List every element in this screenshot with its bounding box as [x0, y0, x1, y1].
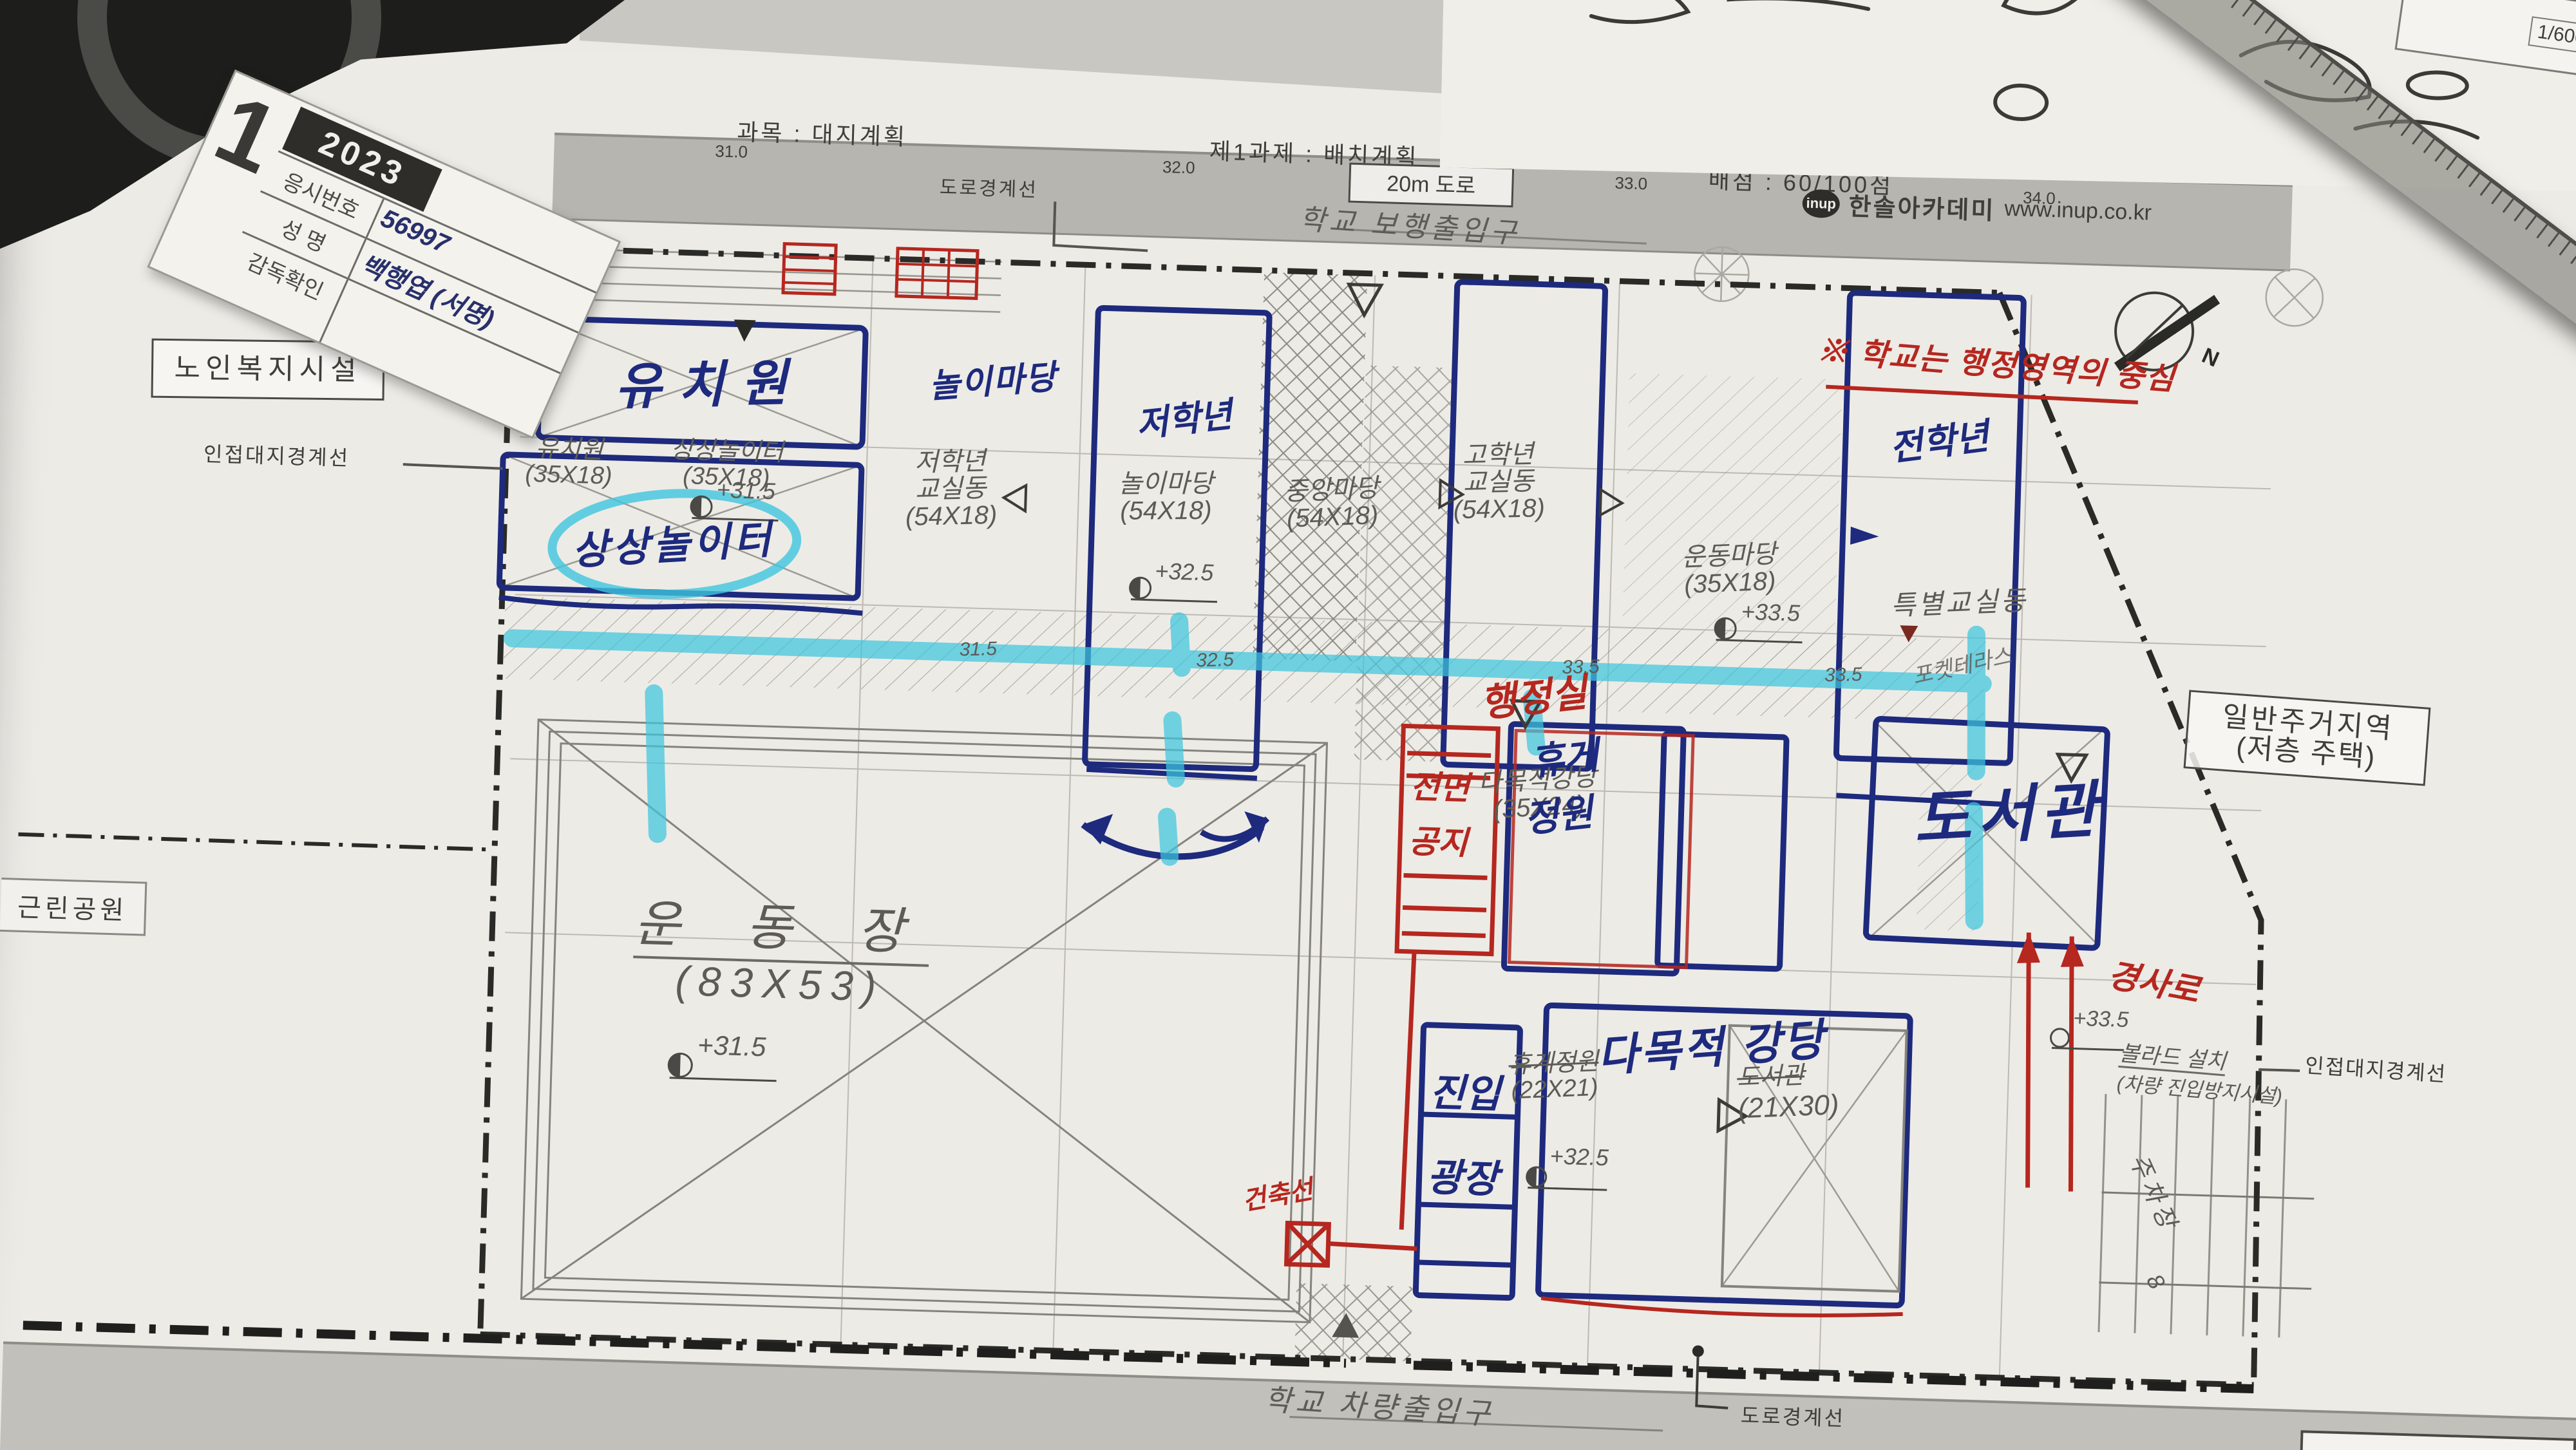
level-sports-yard: +33.5: [1741, 598, 1800, 627]
road-tick-34: 34.0: [2023, 188, 2056, 209]
header-subject: 과목 : 대지계획: [737, 113, 908, 152]
brand-logo-icon: inup: [1802, 189, 1840, 218]
park-label: 근린공원: [0, 878, 147, 936]
level-rest-old: +32.5: [1549, 1142, 1609, 1171]
central-yard-hatch: [1354, 365, 1455, 762]
brand-name: 한솔아카데미: [1848, 187, 1996, 227]
vehicle-entry-hatch: [1294, 1283, 1412, 1361]
rest-old-pencil: 휴게정원(22X21): [1508, 1050, 1600, 1104]
imagination-blue: 상상놀이터: [570, 507, 776, 576]
road-boundary-bottom-label: 도로경계선: [1740, 1399, 1845, 1432]
central-yard-pencil: 중앙마당(54X18): [1283, 475, 1380, 532]
sports-yard-hatch: [1622, 373, 1842, 663]
adjacent-boundary-left-label: 인접대지경계선: [203, 438, 350, 472]
sports-yard-pencil: 운동마당(35X18): [1681, 540, 1777, 598]
level-imagination: +31.5: [716, 476, 775, 505]
road-tick-31: 31.0: [715, 141, 748, 162]
kindergarten-pencil: 유치원(35X18): [525, 436, 614, 490]
level-play-yard: +32.5: [1155, 558, 1214, 587]
road-boundary-top-label: 도로경계선: [939, 171, 1038, 203]
lower-class-pencil: 저학년교실동(54X18): [904, 447, 998, 531]
field-pencil: 운 동 장 (83X53): [632, 898, 930, 1010]
entry-plaza-blue: 진입광장: [1426, 1050, 1502, 1222]
lower-grades-blue: 저학년: [1133, 386, 1235, 447]
road-tick-32: 32.0: [1162, 157, 1196, 178]
road-tick-33: 33.0: [1615, 173, 1648, 194]
kindergarten-blue: 유치원: [614, 343, 805, 419]
special-class-pencil: 특별교실동: [1889, 579, 2028, 624]
front-zone-red: 전면공지: [1408, 760, 1470, 871]
play-yard-pencil: 놀이마당(54X18): [1119, 470, 1214, 525]
rest-garden-blue: 휴게정원: [1526, 728, 1607, 847]
level-ramp: +33.5: [2073, 1006, 2129, 1033]
spine-level-1: 31.5: [959, 638, 997, 661]
parking-grid: [2098, 1094, 2317, 1339]
library-blue: 도서관: [1911, 759, 2105, 860]
field-lines: [521, 720, 1327, 1323]
photo-of-site-plan: { "colors":{"ink_blue":"#1d2a7d","ink_re…: [0, 0, 2576, 1450]
admin-red: 행정실: [1477, 661, 1589, 729]
upper-class-pencil: 고학년교실동(54X18): [1452, 440, 1545, 523]
play-yard-blue: 놀이마당: [927, 350, 1059, 408]
spine-level-4: 33.5: [1824, 664, 1862, 686]
spine-level-2: 32.5: [1196, 649, 1234, 672]
level-field: +31.5: [697, 1030, 767, 1062]
